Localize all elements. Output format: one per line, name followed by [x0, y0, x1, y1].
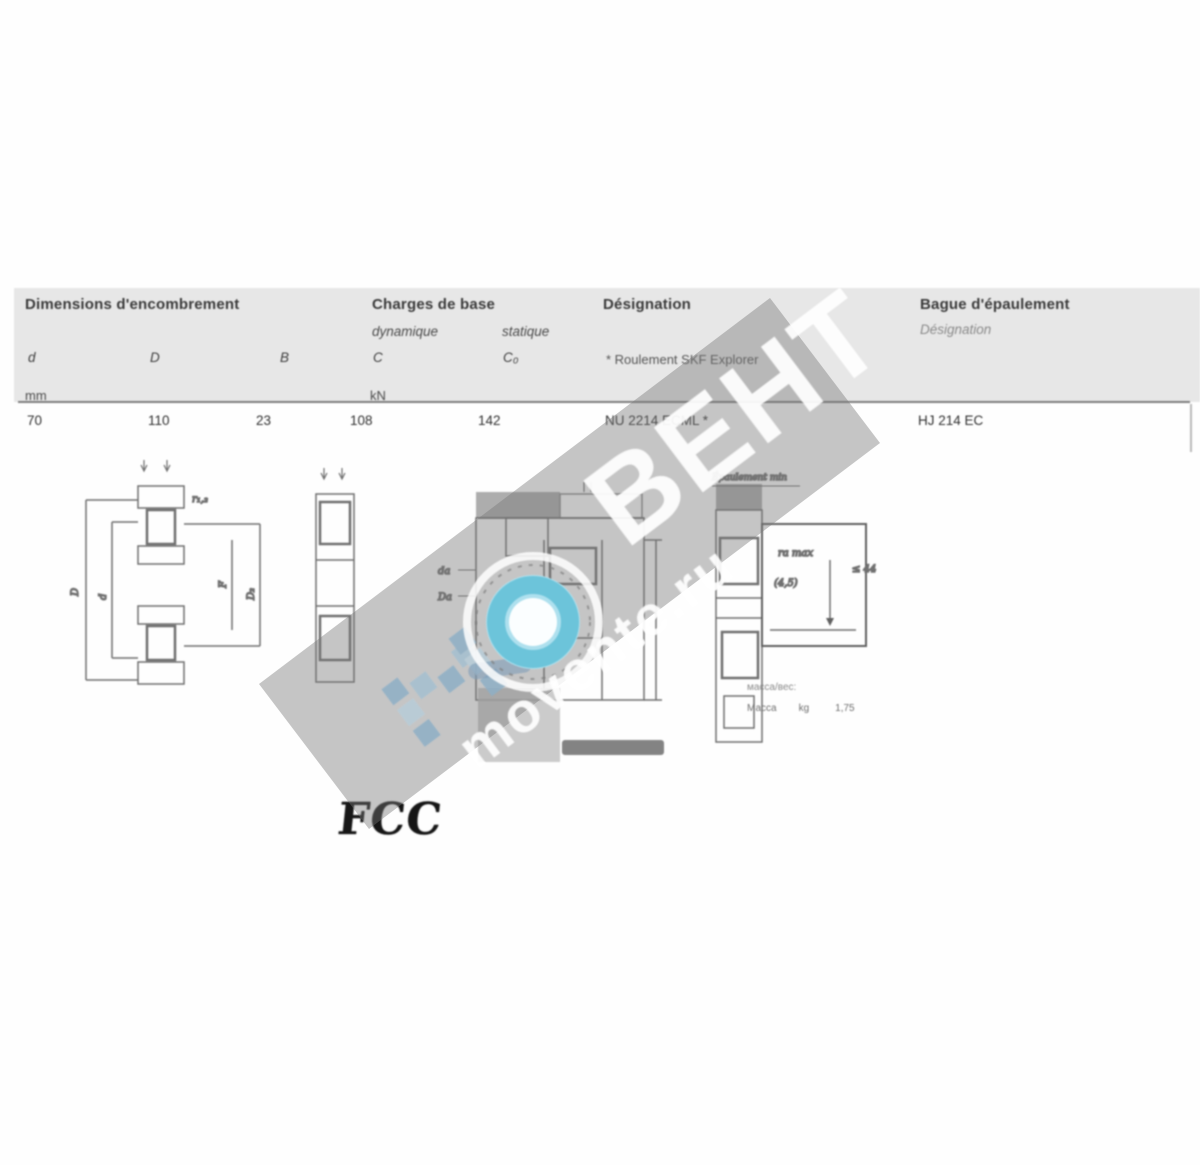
catalog-page: Dimensions d'encombrement d D B mm Charg…	[0, 0, 1200, 1165]
watermark-logos	[0, 0, 1200, 1165]
